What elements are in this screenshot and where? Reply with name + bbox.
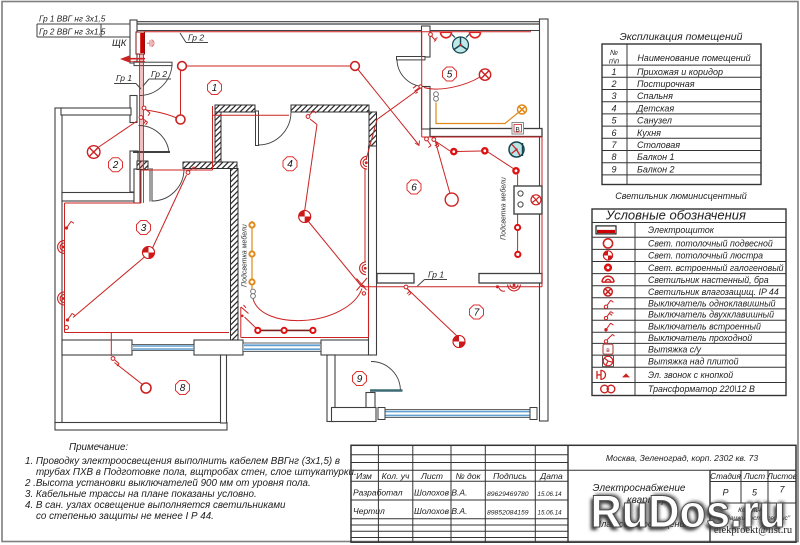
svg-text:Спальня: Спальня xyxy=(637,91,673,101)
svg-text:Подсветка мебели: Подсветка мебели xyxy=(500,177,508,240)
svg-text:Балкон 1: Балкон 1 xyxy=(637,152,675,162)
svg-text:5: 5 xyxy=(447,69,453,80)
svg-text:Выключатель одноклавишный: Выключатель одноклавишный xyxy=(648,299,776,309)
svg-text:3. Кабельные трассы на плане п: 3. Кабельные трассы на плане показаны ус… xyxy=(25,489,257,500)
svg-text:Шолохов В.А.: Шолохов В.А. xyxy=(414,506,467,516)
svg-text:Листов: Листов xyxy=(766,472,798,481)
svg-text:4: 4 xyxy=(611,103,616,113)
svg-text:Дата: Дата xyxy=(539,471,563,481)
svg-text:Стадия: Стадия xyxy=(710,472,741,481)
svg-text:Изм: Изм xyxy=(356,471,372,481)
svg-text:Балкон 2: Балкон 2 xyxy=(637,164,675,174)
svg-text:Гр 2: Гр 2 xyxy=(151,69,167,79)
svg-text:Санузел: Санузел xyxy=(637,116,672,126)
svg-text:Детская: Детская xyxy=(636,103,674,113)
svg-text:2 .Высота установки выключател: 2 .Высота установки выключателей 900 мм … xyxy=(24,478,311,489)
svg-text:Подсветка мебели: Подсветка мебели xyxy=(241,224,249,287)
svg-text:Условные обозначения: Условные обозначения xyxy=(605,208,746,223)
svg-text:2: 2 xyxy=(610,79,616,89)
svg-text:Постирочная: Постирочная xyxy=(637,79,695,89)
svg-text:Разработал: Разработал xyxy=(353,488,403,498)
svg-text:В: В xyxy=(516,126,520,133)
svg-text:ЩК: ЩК xyxy=(112,38,128,49)
svg-text:15.06.14: 15.06.14 xyxy=(538,491,563,498)
svg-text:89629469780: 89629469780 xyxy=(487,491,529,498)
svg-text:Лист: Лист xyxy=(420,471,443,481)
svg-text:8: 8 xyxy=(611,152,616,162)
svg-text:Гр 1: Гр 1 xyxy=(116,73,132,83)
svg-text:Свет. потолочный подвесной: Свет. потолочный подвесной xyxy=(648,239,773,249)
svg-text:RuDos.ru: RuDos.ru xyxy=(591,486,786,537)
svg-text:7: 7 xyxy=(474,307,480,318)
svg-text:Светильник люминисцентный: Светильник люминисцентный xyxy=(615,191,747,201)
svg-text:трубах ПХВ в Подготовке пол: трубах ПХВ в Подготовке пола, вщтробах с… xyxy=(36,467,357,478)
svg-text:Шолохов В.А.: Шолохов В.А. xyxy=(414,488,467,498)
svg-text:4: 4 xyxy=(287,159,293,170)
svg-text:Светильник влагозащищ. IP 44: Светильник влагозащищ. IP 44 xyxy=(648,287,779,297)
svg-text:Выключатель встроенный: Выключатель встроенный xyxy=(648,321,761,331)
svg-text:Гр 2 ВВГ нг 3х1,5: Гр 2 ВВГ нг 3х1,5 xyxy=(39,28,106,37)
svg-text:3: 3 xyxy=(141,223,147,234)
svg-text:Прихожая и коридор: Прихожая и коридор xyxy=(637,67,723,77)
svg-text:Кол. уч: Кол. уч xyxy=(382,471,410,481)
svg-text:Гр 1: Гр 1 xyxy=(428,270,444,280)
svg-text:в: в xyxy=(606,347,610,354)
svg-text:8: 8 xyxy=(180,383,186,394)
svg-text:Вытяжка с/у: Вытяжка с/у xyxy=(648,344,702,354)
svg-text:Гр 2: Гр 2 xyxy=(188,33,204,43)
svg-text:6: 6 xyxy=(611,128,616,138)
svg-text:89852084159: 89852084159 xyxy=(487,510,529,517)
svg-text:Столовая: Столовая xyxy=(637,140,680,150)
svg-text:Свет. встроенный галогеновый: Свет. встроенный галогеновый xyxy=(648,263,784,273)
svg-text:со степенью защиты не менее I: со степенью защиты не менее I Р 44. xyxy=(36,511,214,522)
svg-text:Подпись: Подпись xyxy=(493,471,527,481)
svg-text:Чертил: Чертил xyxy=(353,506,385,516)
svg-text:Свет. потолочный люстра: Свет. потолочный люстра xyxy=(648,251,763,261)
svg-text:Электрощиток: Электрощиток xyxy=(648,225,715,235)
svg-text:9: 9 xyxy=(611,164,616,174)
svg-text:Трансформатор 220\12 В: Трансформатор 220\12 В xyxy=(648,384,755,394)
svg-text:Наименование помещений: Наименование помещений xyxy=(637,53,750,63)
svg-text:1: 1 xyxy=(611,67,616,77)
svg-text:Выключатель проходной: Выключатель проходной xyxy=(648,333,752,343)
svg-text:Москва, Зеленоград, корп. 2302: Москва, Зеленоград, корп. 2302 кв. 73 xyxy=(606,453,758,463)
svg-text:Экспликация помещений: Экспликация помещений xyxy=(620,31,743,43)
svg-text:Кухня: Кухня xyxy=(637,128,661,138)
svg-text:№ док: № док xyxy=(455,471,481,481)
svg-text:п\п: п\п xyxy=(609,57,619,66)
svg-text:Светильник настенный, бра: Светильник настенный, бра xyxy=(648,275,769,285)
svg-text:3: 3 xyxy=(611,91,616,101)
svg-text:1: 1 xyxy=(212,83,218,94)
svg-text:6: 6 xyxy=(411,182,417,193)
svg-text:Гр 1 ВВГ нг 3х1,5: Гр 1 ВВГ нг 3х1,5 xyxy=(39,15,106,24)
svg-text:Эл. звонок с кнопкой: Эл. звонок с кнопкой xyxy=(648,370,733,380)
svg-text:15.06.14: 15.06.14 xyxy=(538,510,563,517)
svg-text:2: 2 xyxy=(112,160,119,171)
svg-text:Лист: Лист xyxy=(743,472,765,481)
svg-text:Выключатель двухклавишный: Выключатель двухклавишный xyxy=(648,310,774,320)
svg-text:Вытяжка над плитой: Вытяжка над плитой xyxy=(648,356,739,366)
svg-text:9: 9 xyxy=(357,374,363,385)
svg-text:1. Проводку электроосвещения: 1. Проводку электроосвещения выполнить к… xyxy=(25,456,340,467)
svg-text:Примечание:: Примечание: xyxy=(69,442,128,453)
svg-text:4. В сан. узлах освещение выпо: 4. В сан. узлах освещение выполняется св… xyxy=(25,500,286,511)
